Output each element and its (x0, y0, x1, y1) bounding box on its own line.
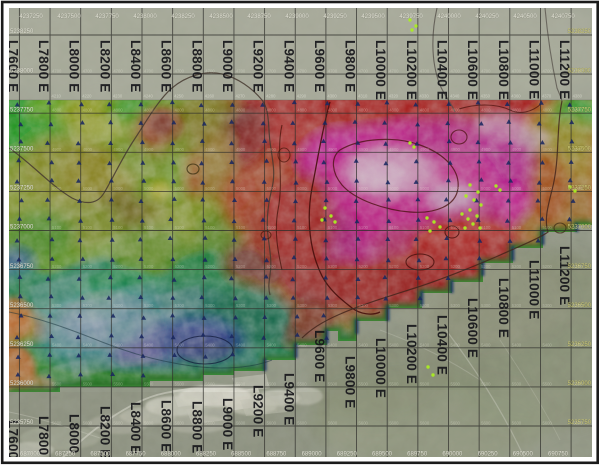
svg-text:4900: 4900 (542, 147, 552, 152)
svg-text:4800: 4800 (205, 108, 215, 113)
svg-text:4250: 4250 (174, 94, 184, 99)
svg-text:4700: 4700 (205, 69, 215, 74)
svg-text:L9800 E: L9800 E (343, 40, 358, 92)
svg-text:4700: 4700 (267, 69, 277, 74)
svg-text:5000: 5000 (113, 186, 123, 191)
svg-text:5100: 5100 (542, 225, 552, 230)
svg-text:L10600 E: L10600 E (465, 40, 480, 100)
svg-text:5600: 5600 (175, 421, 185, 426)
svg-text:L8000 E: L8000 E (67, 40, 82, 92)
svg-text:5400: 5400 (420, 342, 430, 347)
svg-text:5100: 5100 (328, 225, 338, 230)
svg-text:4290: 4290 (297, 94, 307, 99)
svg-text:5600: 5600 (359, 421, 369, 426)
svg-text:5300: 5300 (451, 303, 461, 308)
svg-text:L8400 E: L8400 E (128, 402, 143, 454)
svg-text:689750: 689750 (407, 452, 428, 458)
svg-text:5236000: 5236000 (10, 381, 34, 387)
svg-text:5300: 5300 (328, 303, 338, 308)
svg-text:5200: 5200 (573, 264, 583, 269)
svg-text:5000: 5000 (297, 186, 307, 191)
svg-text:L9200 E: L9200 E (251, 385, 266, 437)
svg-text:5600: 5600 (113, 421, 123, 426)
svg-text:4700: 4700 (113, 69, 123, 74)
svg-text:5237000: 5237000 (10, 225, 34, 231)
svg-text:L10800 E: L10800 E (496, 278, 511, 338)
svg-text:L10200 E: L10200 E (404, 40, 419, 100)
svg-text:5100: 5100 (113, 225, 123, 230)
svg-text:5300: 5300 (359, 303, 369, 308)
svg-text:4800: 4800 (175, 108, 185, 113)
svg-text:5200: 5200 (297, 264, 307, 269)
svg-text:4230: 4230 (113, 94, 123, 99)
svg-text:5100: 5100 (52, 225, 62, 230)
svg-text:5100: 5100 (512, 225, 522, 230)
svg-text:687250: 687250 (55, 452, 76, 458)
svg-text:5200: 5200 (175, 264, 185, 269)
svg-text:5236750: 5236750 (10, 264, 34, 270)
svg-text:L9200 E: L9200 E (251, 40, 266, 92)
svg-text:4900: 4900 (420, 147, 430, 152)
svg-text:L8400 E: L8400 E (128, 40, 143, 92)
svg-text:5600: 5600 (144, 421, 154, 426)
svg-text:4237250: 4237250 (19, 14, 43, 20)
svg-text:5500: 5500 (389, 381, 399, 386)
svg-text:5400: 5400 (52, 342, 62, 347)
svg-text:5000: 5000 (83, 186, 93, 191)
svg-text:5600: 5600 (481, 421, 491, 426)
svg-text:5300: 5300 (144, 303, 154, 308)
svg-text:5500: 5500 (451, 381, 461, 386)
svg-text:5300: 5300 (83, 303, 93, 308)
svg-text:5600: 5600 (542, 421, 552, 426)
svg-text:5237750: 5237750 (10, 107, 34, 113)
svg-text:4800: 4800 (389, 108, 399, 113)
svg-text:5500: 5500 (573, 381, 583, 386)
svg-text:4800: 4800 (267, 108, 277, 113)
svg-text:5100: 5100 (83, 225, 93, 230)
svg-text:5500: 5500 (113, 381, 123, 386)
svg-text:5200: 5200 (389, 264, 399, 269)
svg-text:5300: 5300 (113, 303, 123, 308)
svg-text:5300: 5300 (542, 303, 552, 308)
svg-text:5200: 5200 (359, 264, 369, 269)
svg-text:4310: 4310 (358, 94, 368, 99)
svg-text:5100: 5100 (205, 225, 215, 230)
svg-text:690500: 690500 (513, 452, 534, 458)
svg-text:4800: 4800 (328, 108, 338, 113)
svg-text:5400: 5400 (359, 342, 369, 347)
svg-text:5200: 5200 (451, 264, 461, 269)
svg-text:L10400 E: L10400 E (435, 315, 450, 375)
svg-text:4900: 4900 (297, 147, 307, 152)
svg-text:5100: 5100 (144, 225, 154, 230)
svg-text:5300: 5300 (420, 303, 430, 308)
svg-text:5200: 5200 (328, 264, 338, 269)
svg-text:5600: 5600 (451, 421, 461, 426)
svg-text:4238000: 4238000 (133, 14, 157, 20)
svg-text:5000: 5000 (389, 186, 399, 191)
svg-text:4210: 4210 (52, 94, 62, 99)
svg-text:4700: 4700 (512, 69, 522, 74)
svg-text:4700: 4700 (451, 69, 461, 74)
svg-text:5600: 5600 (328, 421, 338, 426)
svg-text:4700: 4700 (236, 69, 246, 74)
svg-text:4800: 4800 (481, 108, 491, 113)
svg-text:4900: 4900 (144, 147, 154, 152)
svg-text:L8200 E: L8200 E (97, 40, 112, 92)
svg-text:5238250: 5238250 (10, 29, 34, 35)
svg-text:5600: 5600 (205, 421, 215, 426)
svg-text:4900: 4900 (52, 147, 62, 152)
svg-text:5500: 5500 (512, 381, 522, 386)
svg-text:688250: 688250 (196, 452, 217, 458)
svg-text:5200: 5200 (144, 264, 154, 269)
svg-text:4800: 4800 (297, 108, 307, 113)
svg-text:5600: 5600 (573, 421, 583, 426)
svg-text:5600: 5600 (52, 421, 62, 426)
svg-text:4800: 4800 (144, 108, 154, 113)
svg-text:4700: 4700 (573, 69, 583, 74)
svg-text:5000: 5000 (175, 186, 185, 191)
svg-text:688000: 688000 (161, 452, 182, 458)
svg-text:5100: 5100 (359, 225, 369, 230)
svg-text:4800: 4800 (83, 108, 93, 113)
svg-text:L10000 E: L10000 E (373, 40, 388, 100)
svg-text:5500: 5500 (175, 381, 185, 386)
svg-text:5400: 5400 (175, 342, 185, 347)
svg-text:5500: 5500 (542, 381, 552, 386)
svg-text:5100: 5100 (573, 225, 583, 230)
svg-text:4239000: 4239000 (285, 14, 309, 20)
svg-text:4237500: 4237500 (57, 14, 81, 20)
svg-text:4800: 4800 (420, 108, 430, 113)
svg-text:5100: 5100 (236, 225, 246, 230)
svg-text:5000: 5000 (236, 186, 246, 191)
svg-text:L8800 E: L8800 E (189, 401, 204, 453)
svg-text:4700: 4700 (175, 69, 185, 74)
svg-text:4800: 4800 (512, 108, 522, 113)
svg-text:5000: 5000 (52, 186, 62, 191)
svg-text:4239750: 4239750 (399, 14, 423, 20)
svg-text:4900: 4900 (573, 147, 583, 152)
svg-text:4700: 4700 (297, 69, 307, 74)
svg-text:4350: 4350 (481, 94, 491, 99)
svg-text:689250: 689250 (337, 452, 358, 458)
svg-text:5300: 5300 (573, 303, 583, 308)
svg-text:690250: 690250 (478, 452, 499, 458)
svg-text:5300: 5300 (52, 303, 62, 308)
svg-text:687000: 687000 (20, 452, 41, 458)
svg-text:5200: 5200 (52, 264, 62, 269)
svg-text:4330: 4330 (419, 94, 429, 99)
svg-text:4900: 4900 (451, 147, 461, 152)
svg-text:5500: 5500 (236, 381, 246, 386)
svg-text:L9600 E: L9600 E (312, 330, 327, 382)
svg-text:4700: 4700 (328, 69, 338, 74)
svg-text:5500: 5500 (359, 381, 369, 386)
svg-text:4280: 4280 (266, 94, 276, 99)
svg-text:4360: 4360 (511, 94, 521, 99)
svg-text:5600: 5600 (512, 421, 522, 426)
svg-text:5000: 5000 (512, 186, 522, 191)
svg-text:5300: 5300 (236, 303, 246, 308)
svg-text:5400: 5400 (236, 342, 246, 347)
svg-text:4238500: 4238500 (209, 14, 233, 20)
svg-text:4700: 4700 (389, 69, 399, 74)
svg-text:4260: 4260 (205, 94, 215, 99)
svg-text:5400: 5400 (573, 342, 583, 347)
svg-text:5100: 5100 (267, 225, 277, 230)
svg-text:5200: 5200 (512, 264, 522, 269)
svg-text:4900: 4900 (328, 147, 338, 152)
svg-text:5100: 5100 (297, 225, 307, 230)
svg-text:4239500: 4239500 (361, 14, 385, 20)
svg-text:4220: 4220 (82, 94, 92, 99)
svg-text:5500: 5500 (420, 381, 430, 386)
svg-text:690000: 690000 (442, 452, 463, 458)
svg-text:688750: 688750 (266, 452, 287, 458)
svg-text:5400: 5400 (512, 342, 522, 347)
svg-text:L9800 E: L9800 E (343, 356, 358, 408)
svg-text:5400: 5400 (451, 342, 461, 347)
svg-text:4238250: 4238250 (171, 14, 195, 20)
svg-text:5300: 5300 (297, 303, 307, 308)
svg-text:5200: 5200 (481, 264, 491, 269)
svg-text:L10200 E: L10200 E (404, 324, 419, 384)
svg-text:4900: 4900 (359, 147, 369, 152)
svg-text:4239250: 4239250 (323, 14, 347, 20)
svg-text:687750: 687750 (126, 452, 147, 458)
svg-text:4240: 4240 (144, 94, 154, 99)
svg-text:5200: 5200 (236, 264, 246, 269)
svg-text:5400: 5400 (113, 342, 123, 347)
svg-text:4900: 4900 (83, 147, 93, 152)
svg-text:4240250: 4240250 (475, 14, 499, 20)
svg-text:L9400 E: L9400 E (281, 373, 296, 425)
svg-text:5235750: 5235750 (10, 420, 34, 426)
svg-text:4700: 4700 (420, 69, 430, 74)
svg-text:L9400 E: L9400 E (281, 40, 296, 92)
svg-text:4900: 4900 (205, 147, 215, 152)
svg-text:4800: 4800 (359, 108, 369, 113)
svg-text:4700: 4700 (144, 69, 154, 74)
svg-text:5100: 5100 (451, 225, 461, 230)
svg-text:5300: 5300 (512, 303, 522, 308)
svg-text:5000: 5000 (573, 186, 583, 191)
svg-text:4800: 4800 (573, 108, 583, 113)
svg-text:5600: 5600 (297, 421, 307, 426)
svg-text:5000: 5000 (359, 186, 369, 191)
svg-text:5300: 5300 (267, 303, 277, 308)
svg-text:5500: 5500 (297, 381, 307, 386)
svg-text:5236500: 5236500 (10, 303, 34, 309)
svg-text:L10400 E: L10400 E (435, 40, 450, 100)
svg-text:5400: 5400 (205, 342, 215, 347)
svg-text:4900: 4900 (113, 147, 123, 152)
svg-text:5500: 5500 (328, 381, 338, 386)
svg-text:5400: 5400 (481, 342, 491, 347)
svg-text:5000: 5000 (542, 186, 552, 191)
svg-text:5237500: 5237500 (10, 147, 34, 153)
svg-text:4700: 4700 (83, 69, 93, 74)
svg-text:5000: 5000 (205, 186, 215, 191)
svg-text:L8800 E: L8800 E (189, 40, 204, 92)
svg-text:689000: 689000 (302, 452, 323, 458)
svg-text:4900: 4900 (236, 147, 246, 152)
svg-text:4700: 4700 (481, 69, 491, 74)
svg-text:688500: 688500 (231, 452, 252, 458)
svg-text:L10600 E: L10600 E (465, 298, 480, 358)
svg-text:5000: 5000 (267, 186, 277, 191)
svg-text:L11200 E: L11200 E (557, 246, 572, 305)
svg-text:5500: 5500 (52, 381, 62, 386)
svg-text:5500: 5500 (83, 381, 93, 386)
svg-text:4320: 4320 (389, 94, 399, 99)
svg-text:5500: 5500 (144, 381, 154, 386)
svg-text:5000: 5000 (451, 186, 461, 191)
svg-text:4240500: 4240500 (513, 14, 537, 20)
svg-text:5400: 5400 (144, 342, 154, 347)
svg-text:4900: 4900 (481, 147, 491, 152)
svg-text:5100: 5100 (481, 225, 491, 230)
svg-text:5500: 5500 (267, 381, 277, 386)
svg-text:L11000 E: L11000 E (526, 40, 541, 99)
svg-text:L11000 E: L11000 E (526, 260, 541, 319)
svg-text:5236250: 5236250 (10, 342, 34, 348)
svg-text:4800: 4800 (451, 108, 461, 113)
svg-text:5300: 5300 (389, 303, 399, 308)
svg-text:5400: 5400 (297, 342, 307, 347)
svg-text:4900: 4900 (389, 147, 399, 152)
svg-text:5400: 5400 (389, 342, 399, 347)
svg-text:5000: 5000 (144, 186, 154, 191)
svg-text:5400: 5400 (267, 342, 277, 347)
svg-text:4300: 4300 (327, 94, 337, 99)
svg-text:4800: 4800 (236, 108, 246, 113)
svg-text:5600: 5600 (83, 421, 93, 426)
svg-text:5600: 5600 (389, 421, 399, 426)
svg-text:5200: 5200 (83, 264, 93, 269)
svg-text:5100: 5100 (389, 225, 399, 230)
svg-text:687500: 687500 (90, 452, 111, 458)
svg-text:L10000 E: L10000 E (373, 338, 388, 398)
svg-text:4700: 4700 (52, 69, 62, 74)
svg-text:5100: 5100 (420, 225, 430, 230)
svg-text:4240750: 4240750 (551, 14, 575, 20)
svg-text:5300: 5300 (175, 303, 185, 308)
svg-text:4900: 4900 (512, 147, 522, 152)
svg-text:L9600 E: L9600 E (312, 40, 327, 92)
svg-text:690750: 690750 (548, 452, 569, 458)
svg-text:5200: 5200 (420, 264, 430, 269)
svg-text:L7800 E: L7800 E (36, 40, 51, 92)
svg-text:5500: 5500 (205, 381, 215, 386)
svg-text:4237750: 4237750 (95, 14, 119, 20)
svg-text:5000: 5000 (420, 186, 430, 191)
svg-text:L10800 E: L10800 E (496, 40, 511, 100)
svg-text:4700: 4700 (359, 69, 369, 74)
svg-text:5400: 5400 (542, 342, 552, 347)
svg-text:5238000: 5238000 (10, 68, 34, 74)
svg-text:5600: 5600 (420, 421, 430, 426)
svg-text:4800: 4800 (52, 108, 62, 113)
svg-text:L9000 E: L9000 E (220, 40, 235, 92)
svg-text:L9000 E: L9000 E (220, 398, 235, 450)
svg-text:5400: 5400 (328, 342, 338, 347)
svg-text:4238750: 4238750 (247, 14, 271, 20)
svg-text:5200: 5200 (267, 264, 277, 269)
svg-text:4900: 4900 (267, 147, 277, 152)
svg-text:4800: 4800 (542, 108, 552, 113)
svg-text:5300: 5300 (481, 303, 491, 308)
svg-text:689500: 689500 (372, 452, 393, 458)
svg-text:4340: 4340 (450, 94, 460, 99)
svg-text:5000: 5000 (481, 186, 491, 191)
svg-text:4380: 4380 (573, 94, 583, 99)
svg-text:4800: 4800 (113, 108, 123, 113)
svg-text:L8600 E: L8600 E (159, 400, 174, 452)
svg-text:5000: 5000 (328, 186, 338, 191)
svg-text:5600: 5600 (267, 421, 277, 426)
svg-text:4240000: 4240000 (437, 14, 461, 20)
svg-text:4370: 4370 (542, 94, 552, 99)
svg-text:5237250: 5237250 (10, 186, 34, 192)
svg-text:L8600 E: L8600 E (159, 40, 174, 92)
svg-text:5500: 5500 (481, 381, 491, 386)
svg-text:4900: 4900 (175, 147, 185, 152)
svg-text:5100: 5100 (175, 225, 185, 230)
svg-text:4270: 4270 (235, 94, 245, 99)
svg-text:5600: 5600 (236, 421, 246, 426)
svg-text:5400: 5400 (83, 342, 93, 347)
svg-text:4700: 4700 (542, 69, 552, 74)
svg-text:5300: 5300 (205, 303, 215, 308)
svg-text:5238250: 5238250 (568, 29, 592, 35)
svg-text:5200: 5200 (113, 264, 123, 269)
svg-text:5200: 5200 (542, 264, 552, 269)
svg-text:5200: 5200 (205, 264, 215, 269)
